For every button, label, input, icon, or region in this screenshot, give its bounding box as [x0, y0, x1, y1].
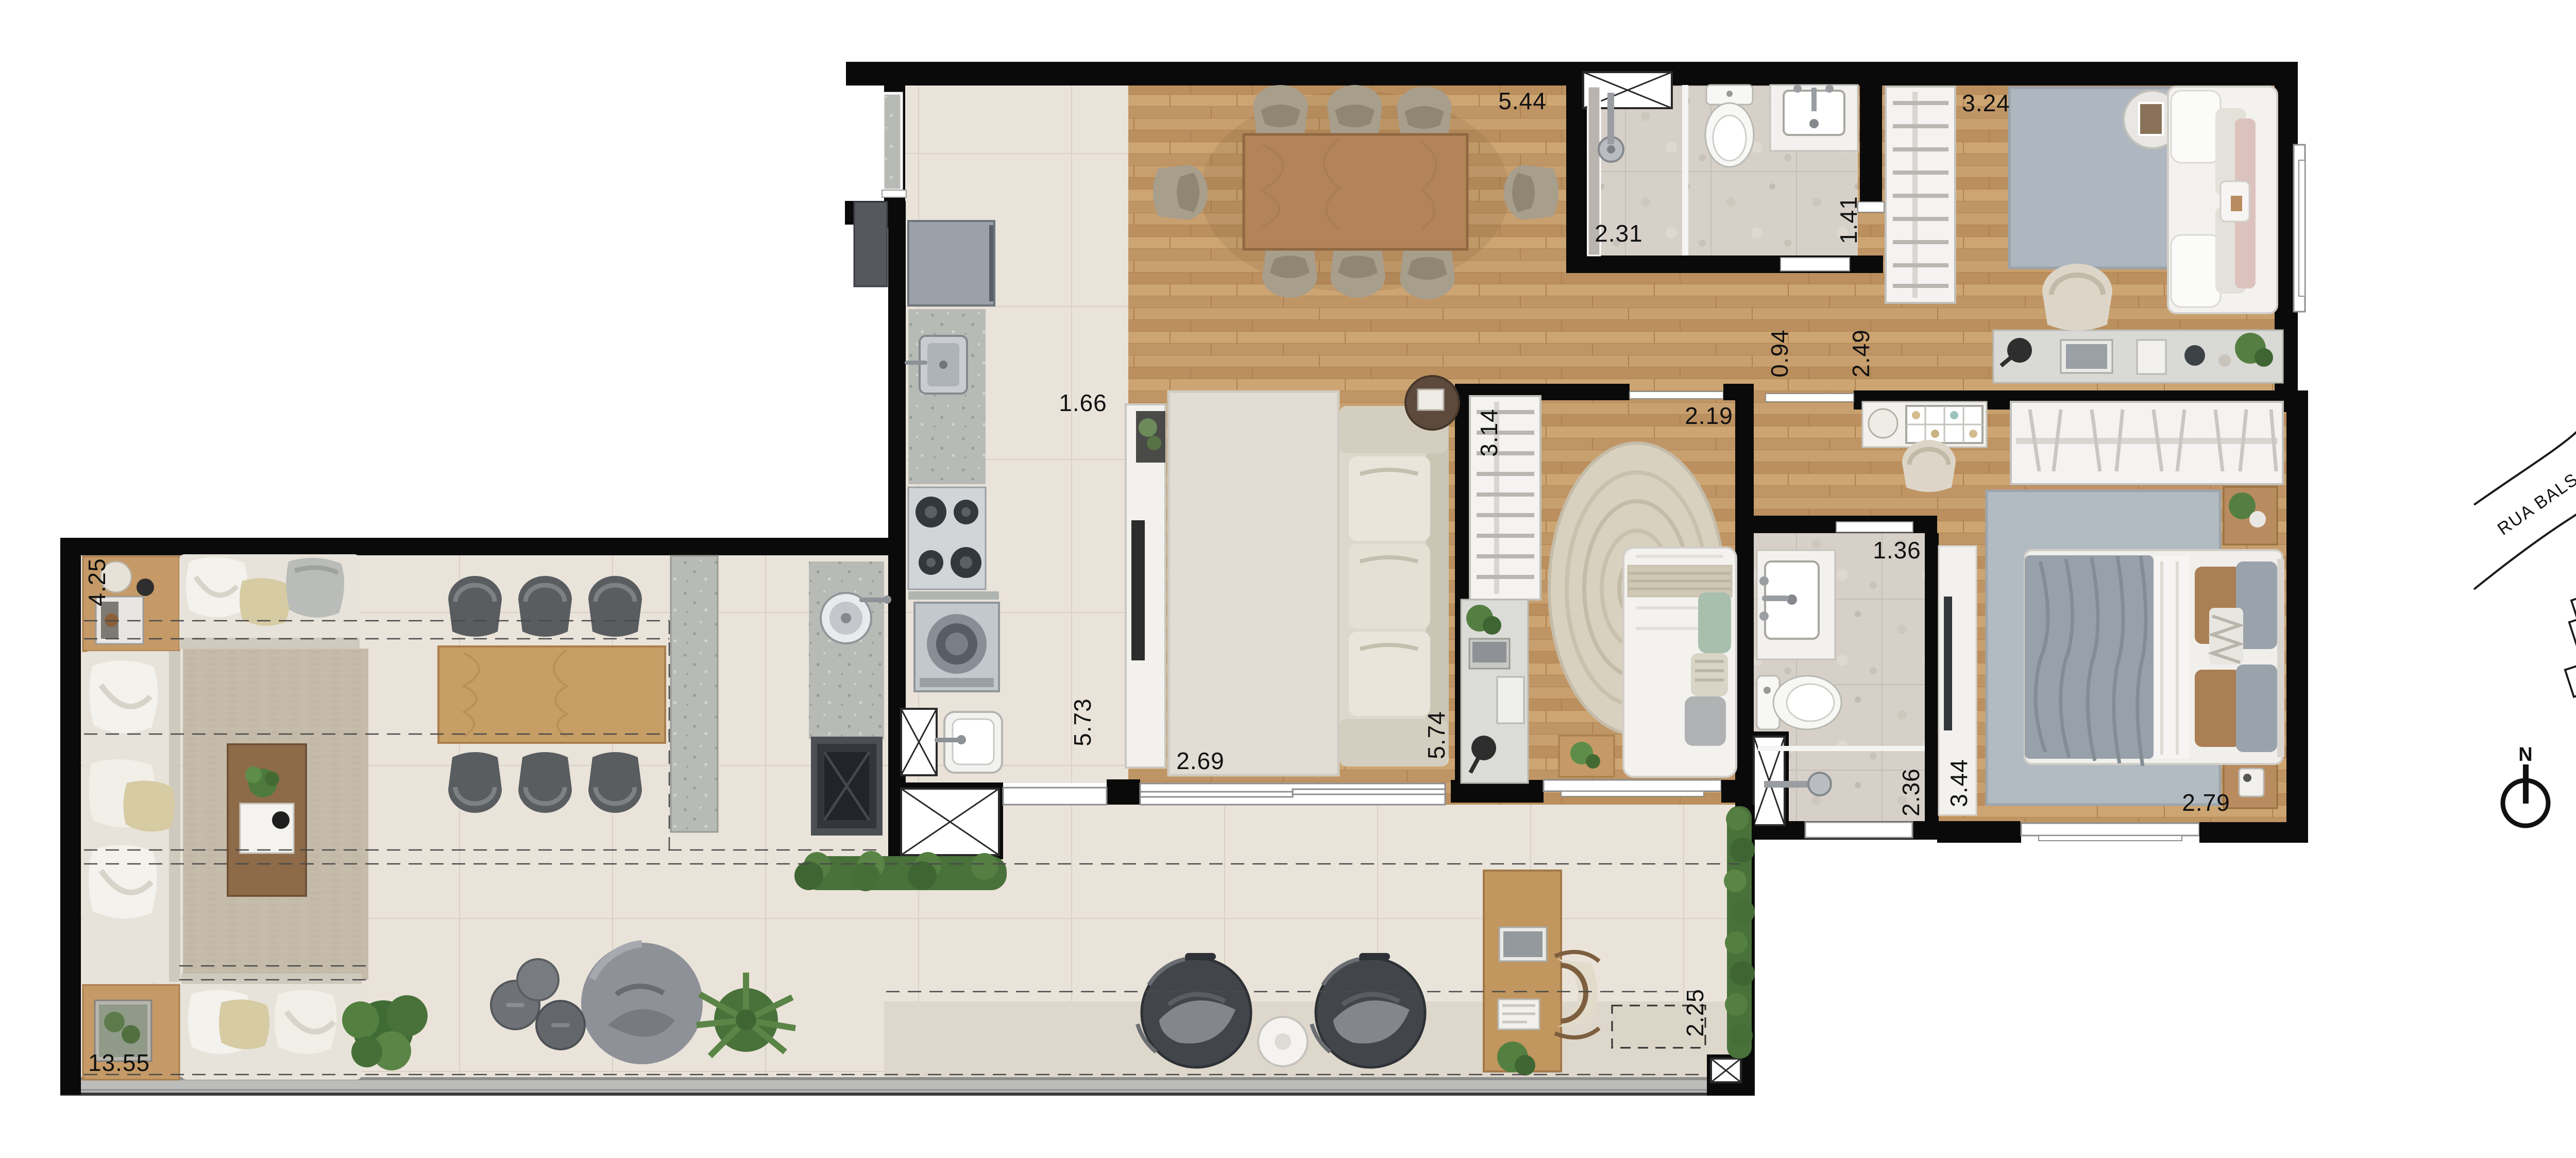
svg-text:13.55: 13.55	[88, 1049, 150, 1076]
svg-text:4.25: 4.25	[83, 558, 110, 606]
svg-text:0.94: 0.94	[1766, 329, 1793, 378]
svg-text:5.73: 5.73	[1069, 698, 1096, 746]
svg-text:1.36: 1.36	[1873, 537, 1921, 564]
svg-text:2.69: 2.69	[1176, 747, 1225, 774]
svg-text:1.66: 1.66	[1059, 389, 1107, 416]
svg-text:5.44: 5.44	[1498, 88, 1547, 114]
svg-text:N: N	[2518, 744, 2532, 765]
svg-text:1.41: 1.41	[1835, 196, 1862, 244]
svg-text:2.31: 2.31	[1595, 220, 1643, 247]
svg-text:3.14: 3.14	[1476, 408, 1502, 457]
svg-text:2.19: 2.19	[1685, 402, 1733, 429]
svg-text:5.74: 5.74	[1423, 711, 1450, 759]
svg-text:2.49: 2.49	[1848, 329, 1874, 378]
svg-text:2.25: 2.25	[1682, 989, 1708, 1037]
svg-text:3.24: 3.24	[1962, 90, 2010, 116]
svg-text:3.44: 3.44	[1945, 759, 1972, 807]
svg-text:2.36: 2.36	[1897, 768, 1924, 816]
svg-text:2.79: 2.79	[2182, 789, 2230, 816]
